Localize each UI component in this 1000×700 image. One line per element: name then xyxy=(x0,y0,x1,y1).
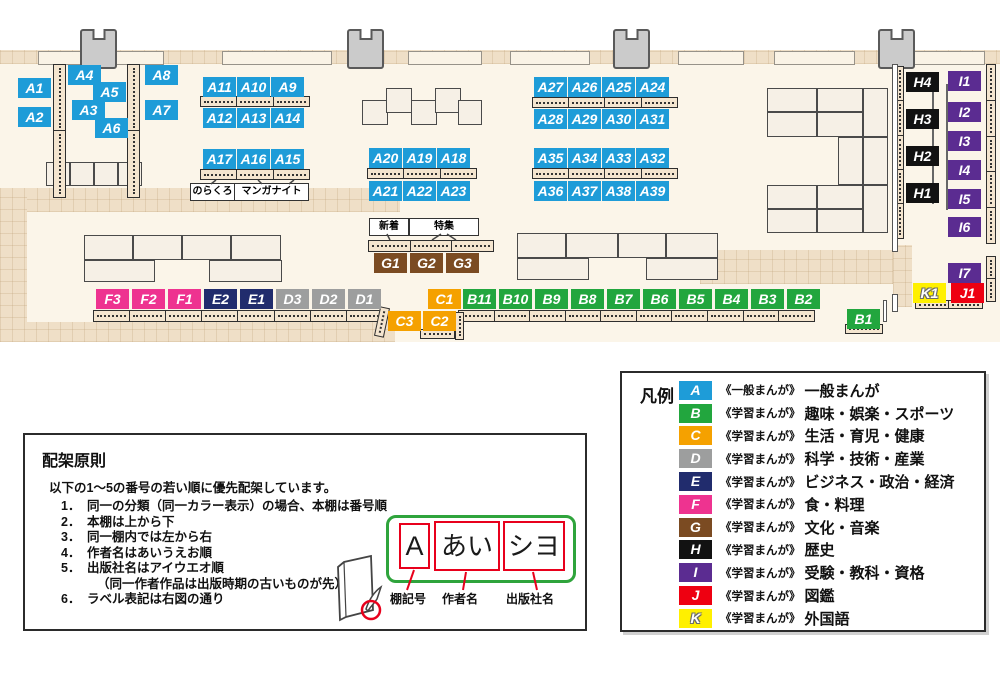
shelf-label-a1: A1 xyxy=(18,78,51,98)
corridor-right-horizontal xyxy=(700,250,893,284)
shelf-label-a34: A34 xyxy=(568,148,601,168)
shelf-label-h2: H2 xyxy=(906,146,939,166)
bookshelf-segment xyxy=(636,310,673,322)
principles-item-text: 本棚は上から下 xyxy=(87,515,175,531)
legend-type: 《一般まんが》 xyxy=(720,382,801,398)
legend-type: 《学習まんが》 xyxy=(720,428,801,444)
shelf-label-h1: H1 xyxy=(906,183,939,203)
caption-shelf-code: 棚記号 xyxy=(390,590,426,607)
legend-label: 受験・教科・資格 xyxy=(805,562,925,583)
bookshelf-segment xyxy=(671,310,708,322)
shelf-label-e1: E1 xyxy=(240,289,273,309)
reading-table xyxy=(231,235,281,260)
legend-chip-h: H xyxy=(679,540,712,559)
principles-item: 1．同一の分類（同一カラー表示）の場合、本棚は番号順 xyxy=(61,499,387,515)
shelf-label-a35: A35 xyxy=(534,148,567,168)
legend-row-a: A《一般まんが》一般まんが xyxy=(679,379,955,402)
legend-label: 外国語 xyxy=(805,608,850,629)
bookshelf-segment xyxy=(53,130,66,198)
bookshelf-segment xyxy=(127,130,140,198)
reading-table xyxy=(209,260,282,282)
shelf-label-a21: A21 xyxy=(369,181,402,201)
reading-table xyxy=(646,258,718,280)
bookshelf-segment xyxy=(274,310,311,322)
shelf-label-b10: B10 xyxy=(499,289,532,309)
shelf-label-e2: E2 xyxy=(204,289,237,309)
shelf-label-a32: A32 xyxy=(636,148,669,168)
legend-label: 歴史 xyxy=(805,539,835,560)
bookshelf-segment xyxy=(368,240,411,252)
reading-table xyxy=(863,185,888,233)
bookshelf-segment xyxy=(986,171,996,208)
shelf-label-b4: B4 xyxy=(715,289,748,309)
label-box-shelf-code: A xyxy=(399,523,430,569)
bookshelf-segment xyxy=(641,168,678,179)
shelf-label-i2: I2 xyxy=(948,102,981,122)
reading-table xyxy=(767,209,817,233)
bookshelf xyxy=(986,64,996,244)
shelf-label-c2: C2 xyxy=(423,311,456,331)
wall-window xyxy=(408,51,482,65)
bookshelf xyxy=(458,310,815,322)
pillar-notch xyxy=(359,29,372,40)
legend-row-g: G《学習まんが》文化・音楽 xyxy=(679,516,955,539)
bookshelf-segment xyxy=(986,64,996,101)
shelf-label-d3: D3 xyxy=(276,289,309,309)
bookshelf-segment xyxy=(986,207,996,244)
shelf-label-a16: A16 xyxy=(237,149,270,169)
principles-item-text: 同一棚内では左から右 xyxy=(87,530,212,546)
bookshelf xyxy=(532,97,678,108)
bookshelf-segment xyxy=(455,312,464,340)
shelf-label-b5: B5 xyxy=(679,289,712,309)
bookshelf-segment xyxy=(743,310,780,322)
shelf-tag: 新着 xyxy=(369,218,409,236)
bookshelf-segment xyxy=(565,310,602,322)
legend-type: 《学習まんが》 xyxy=(720,474,801,490)
principles-item-number: 6． xyxy=(61,592,87,608)
legend-type: 《学習まんが》 xyxy=(720,610,801,626)
reading-table xyxy=(386,88,412,113)
bookshelf-segment xyxy=(986,278,996,302)
bookshelf-segment xyxy=(129,310,166,322)
legend-row-i: I《学習まんが》受験・教科・資格 xyxy=(679,561,955,584)
pillar-notch xyxy=(92,29,105,40)
wall-window xyxy=(222,51,332,65)
principles-list: 1．同一の分類（同一カラー表示）の場合、本棚は番号順2．本棚は上から下3．同一棚… xyxy=(61,499,387,608)
reading-table xyxy=(566,233,618,258)
principles-item-text: ラベル表記は右図の通り xyxy=(87,592,225,608)
bookshelf xyxy=(93,310,383,322)
bookshelf-segment xyxy=(494,310,531,322)
bookshelf xyxy=(127,64,140,198)
shelf-label-a2: A2 xyxy=(18,107,51,127)
bookshelf xyxy=(532,168,678,179)
bookshelf-segment xyxy=(604,168,641,179)
wall-window xyxy=(774,51,855,65)
bookshelf-segment xyxy=(532,97,569,108)
principles-item-number: 3． xyxy=(61,530,87,546)
shelf-label-f3: F3 xyxy=(96,289,129,309)
reading-table xyxy=(838,137,863,185)
label-box-author: あい xyxy=(434,521,500,571)
bookshelf-segment xyxy=(410,240,453,252)
legend-chip-c: C xyxy=(679,426,712,445)
bookshelf-segment xyxy=(440,168,477,179)
reading-table xyxy=(863,88,888,137)
shelf-label-a27: A27 xyxy=(534,77,567,97)
bookshelf-segment xyxy=(367,168,404,179)
legend-chip-g: G xyxy=(679,518,712,537)
legend-type: 《学習まんが》 xyxy=(720,519,801,535)
bookshelf-segment xyxy=(236,169,273,180)
reading-table xyxy=(817,209,863,233)
caption-author: 作者名 xyxy=(442,590,478,607)
shelf-label-g2: G2 xyxy=(410,253,443,273)
reading-table xyxy=(666,233,718,258)
bookshelf-segment xyxy=(778,310,815,322)
shelf-label-a28: A28 xyxy=(534,109,567,129)
reading-table xyxy=(817,88,863,112)
bookshelf-segment xyxy=(93,310,130,322)
bookshelf-segment xyxy=(127,64,140,132)
legend-title: 凡例 xyxy=(640,382,674,407)
shelf-label-c3: C3 xyxy=(388,311,421,331)
shelf-label-h4: H4 xyxy=(906,72,939,92)
shelf-label-a17: A17 xyxy=(203,149,236,169)
reading-table xyxy=(94,162,118,186)
legend-type: 《学習まんが》 xyxy=(720,451,801,467)
principles-item-number: 4． xyxy=(61,546,87,562)
principles-item-text: 同一の分類（同一カラー表示）の場合、本棚は番号順 xyxy=(87,499,387,515)
legend-chip-i: I xyxy=(679,563,712,582)
pillar xyxy=(347,29,384,69)
reading-table xyxy=(767,185,817,209)
shelf-label-i1: I1 xyxy=(948,71,981,91)
principles-item: 6．ラベル表記は右図の通り xyxy=(61,592,387,608)
wall-window xyxy=(678,51,744,65)
bookshelf xyxy=(367,168,477,179)
shelf-tag: マンガナイト xyxy=(234,183,309,201)
principles-title: 配架原則 xyxy=(42,447,106,471)
shelf-label-b2: B2 xyxy=(787,289,820,309)
legend-label: 文化・音楽 xyxy=(805,517,880,538)
bookshelf-segment xyxy=(707,310,744,322)
legend-box: 凡例 A《一般まんが》一般まんがB《学習まんが》趣味・娯楽・スポーツC《学習まん… xyxy=(620,371,986,632)
shelf-label-b6: B6 xyxy=(643,289,676,309)
legend-label: 趣味・娯楽・スポーツ xyxy=(805,403,955,424)
bookshelf-segment xyxy=(403,168,440,179)
principles-item-number: 2． xyxy=(61,515,87,531)
bookshelf-segment xyxy=(310,310,347,322)
label-box-publisher: シヨ xyxy=(503,521,565,571)
bookshelf-segment xyxy=(200,169,237,180)
legend-row-f: F《学習まんが》食・料理 xyxy=(679,493,955,516)
shelf-label-h3: H3 xyxy=(906,109,939,129)
shelf-label-a9: A9 xyxy=(271,77,304,97)
shelf-tag: 特集 xyxy=(409,218,479,236)
reading-table xyxy=(517,258,589,280)
reading-table xyxy=(133,235,182,260)
corridor-bottom-left xyxy=(0,322,395,342)
wall-window xyxy=(510,51,590,65)
wall-partition xyxy=(883,300,887,322)
legend-label: 食・料理 xyxy=(805,494,865,515)
bookshelf-segment xyxy=(236,96,273,107)
legend-row-d: D《学習まんが》科学・技術・産業 xyxy=(679,447,955,470)
shelf-label-b8: B8 xyxy=(571,289,604,309)
principles-item: 2．本棚は上から下 xyxy=(61,515,387,531)
shelf-label-a12: A12 xyxy=(203,108,236,128)
shelf-label-a20: A20 xyxy=(369,148,402,168)
shelf-label-g1: G1 xyxy=(374,253,407,273)
legend-label: 科学・技術・産業 xyxy=(805,448,925,469)
shelf-label-b11: B11 xyxy=(463,289,496,309)
shelf-label-a14: A14 xyxy=(271,108,304,128)
bookshelf-segment xyxy=(165,310,202,322)
shelf-label-d1: D1 xyxy=(348,289,381,309)
bookshelf xyxy=(200,169,310,180)
shelf-label-a37: A37 xyxy=(568,181,601,201)
shelf-label-b3: B3 xyxy=(751,289,784,309)
principles-item-number: 5． xyxy=(61,561,87,577)
legend-type: 《学習まんが》 xyxy=(720,405,801,421)
principles-intro: 以下の1〜5の番号の若い順に優先配架しています。 xyxy=(49,477,336,496)
shelf-label-a19: A19 xyxy=(403,148,436,168)
shelf-label-f1: F1 xyxy=(168,289,201,309)
reading-table xyxy=(618,233,666,258)
legend-chip-a: A xyxy=(679,381,712,400)
wall-partition xyxy=(892,294,898,312)
reading-table xyxy=(182,235,231,260)
legend-label: 生活・育児・健康 xyxy=(805,425,925,446)
bookshelf-segment xyxy=(273,169,310,180)
principles-item-number xyxy=(61,577,87,593)
bookshelf-segment xyxy=(986,256,996,280)
shelf-label-a26: A26 xyxy=(568,77,601,97)
reading-table xyxy=(817,185,863,209)
bookshelf-segment xyxy=(532,168,569,179)
shelf-label-a22: A22 xyxy=(403,181,436,201)
shelf-label-a33: A33 xyxy=(602,148,635,168)
legend-chip-f: F xyxy=(679,495,712,514)
legend-row-b: B《学習まんが》趣味・娯楽・スポーツ xyxy=(679,402,955,425)
reading-table xyxy=(84,235,133,260)
shelf-label-a18: A18 xyxy=(437,148,470,168)
shelf-label-a38: A38 xyxy=(602,181,635,201)
legend-type: 《学習まんが》 xyxy=(720,496,801,512)
principles-item: 3．同一棚内では左から右 xyxy=(61,530,387,546)
caption-publisher: 出版社名 xyxy=(506,590,554,607)
bookshelf-segment xyxy=(53,64,66,132)
shelf-label-a3: A3 xyxy=(72,100,105,120)
bookshelf-segment xyxy=(451,240,494,252)
bookshelf-segment xyxy=(600,310,637,322)
bookshelf xyxy=(455,312,464,340)
pillar xyxy=(80,29,117,69)
bookshelf-segment xyxy=(604,97,641,108)
shelf-label-b9: B9 xyxy=(535,289,568,309)
reading-table xyxy=(817,112,863,137)
shelf-label-i5: I5 xyxy=(948,189,981,209)
reading-table xyxy=(767,88,817,112)
reading-table xyxy=(84,260,155,282)
legend-row-k: K《学習まんが》外国語 xyxy=(679,607,955,630)
shelf-label-a15: A15 xyxy=(271,149,304,169)
principles-item-number: 1． xyxy=(61,499,87,515)
shelf-label-a5: A5 xyxy=(93,82,126,102)
shelf-label-a31: A31 xyxy=(636,109,669,129)
bookshelf-segment xyxy=(568,97,605,108)
legend-row-j: J《学習まんが》図鑑 xyxy=(679,584,955,607)
shelf-label-k1: K1 xyxy=(913,283,946,303)
bookshelf-segment xyxy=(641,97,678,108)
corridor-left-vertical xyxy=(0,188,27,342)
pillar-notch xyxy=(625,29,638,40)
bookshelf xyxy=(986,256,996,302)
bookshelf-segment xyxy=(237,310,274,322)
principles-item-text: （同一作者作品は出版時期の古いものが先） xyxy=(87,577,347,593)
shelf-label-a30: A30 xyxy=(602,109,635,129)
shelf-label-a7: A7 xyxy=(145,100,178,120)
pillar xyxy=(613,29,650,69)
principles-item: （同一作者作品は出版時期の古いものが先） xyxy=(61,577,387,593)
legend-type: 《学習まんが》 xyxy=(720,588,801,604)
principles-item-text: 作者名はあいうえお順 xyxy=(87,546,212,562)
legend-row-c: C《学習まんが》生活・育児・健康 xyxy=(679,425,955,448)
reading-table xyxy=(362,100,388,125)
bookshelf xyxy=(200,96,310,107)
principles-item: 4．作者名はあいうえお順 xyxy=(61,546,387,562)
shelf-label-i6: I6 xyxy=(948,217,981,237)
shelf-tag: のらくろ xyxy=(190,183,235,201)
reading-table xyxy=(517,233,566,258)
shelf-label-d2: D2 xyxy=(312,289,345,309)
legend-chip-k: K xyxy=(679,609,712,628)
legend-label: ビジネス・政治・経済 xyxy=(805,471,955,492)
shelf-label-a36: A36 xyxy=(534,181,567,201)
legend-chip-j: J xyxy=(679,586,712,605)
reading-table xyxy=(767,112,817,137)
bookshelf-segment xyxy=(200,96,237,107)
bookshelf-segment xyxy=(568,168,605,179)
reading-table xyxy=(458,100,482,125)
shelf-label-a11: A11 xyxy=(203,77,236,97)
bookshelf xyxy=(53,64,66,198)
legend-chip-b: B xyxy=(679,404,712,423)
shelf-label-g3: G3 xyxy=(446,253,479,273)
reading-table xyxy=(411,100,437,125)
legend-row-e: E《学習まんが》ビジネス・政治・経済 xyxy=(679,470,955,493)
shelf-label-a24: A24 xyxy=(636,77,669,97)
shelf-label-f2: F2 xyxy=(132,289,165,309)
wall-partition xyxy=(892,64,898,252)
bookshelf-segment xyxy=(273,96,310,107)
shelf-label-a6: A6 xyxy=(95,118,128,138)
pillar-notch xyxy=(890,29,903,40)
wall-window xyxy=(913,51,985,65)
shelf-label-a25: A25 xyxy=(602,77,635,97)
legend-list: A《一般まんが》一般まんがB《学習まんが》趣味・娯楽・スポーツC《学習まんが》生… xyxy=(679,379,955,630)
shelf-label-a23: A23 xyxy=(437,181,470,201)
principles-item: 5．出版社名はアイウエオ順 xyxy=(61,561,387,577)
shelf-label-a39: A39 xyxy=(636,181,669,201)
shelf-label-a8: A8 xyxy=(145,65,178,85)
reading-table xyxy=(863,137,888,185)
legend-label: 図鑑 xyxy=(805,585,835,606)
shelf-label-a29: A29 xyxy=(568,109,601,129)
shelf-label-j1: J1 xyxy=(951,283,984,303)
shelf-label-a10: A10 xyxy=(237,77,270,97)
bookshelf-segment xyxy=(201,310,238,322)
reading-table xyxy=(70,162,94,186)
legend-chip-e: E xyxy=(679,472,712,491)
legend-label: 一般まんが xyxy=(805,380,880,401)
shelf-label-a13: A13 xyxy=(237,108,270,128)
bookshelf-segment xyxy=(986,100,996,137)
shelf-label-c1: C1 xyxy=(428,289,461,309)
pillar xyxy=(878,29,915,69)
principles-item-text: 出版社名はアイウエオ順 xyxy=(87,561,224,577)
bookshelf xyxy=(368,240,494,252)
bookshelf-segment xyxy=(986,136,996,173)
legend-type: 《学習まんが》 xyxy=(720,565,801,581)
shelf-label-i3: I3 xyxy=(948,131,981,151)
shelf-label-i4: I4 xyxy=(948,160,981,180)
shelf-label-b1: B1 xyxy=(847,309,880,329)
legend-row-h: H《学習まんが》歴史 xyxy=(679,539,955,562)
shelf-label-i7: I7 xyxy=(948,263,981,283)
shelf-label-b7: B7 xyxy=(607,289,640,309)
legend-type: 《学習まんが》 xyxy=(720,542,801,558)
bookshelf-segment xyxy=(529,310,566,322)
legend-chip-d: D xyxy=(679,449,712,468)
